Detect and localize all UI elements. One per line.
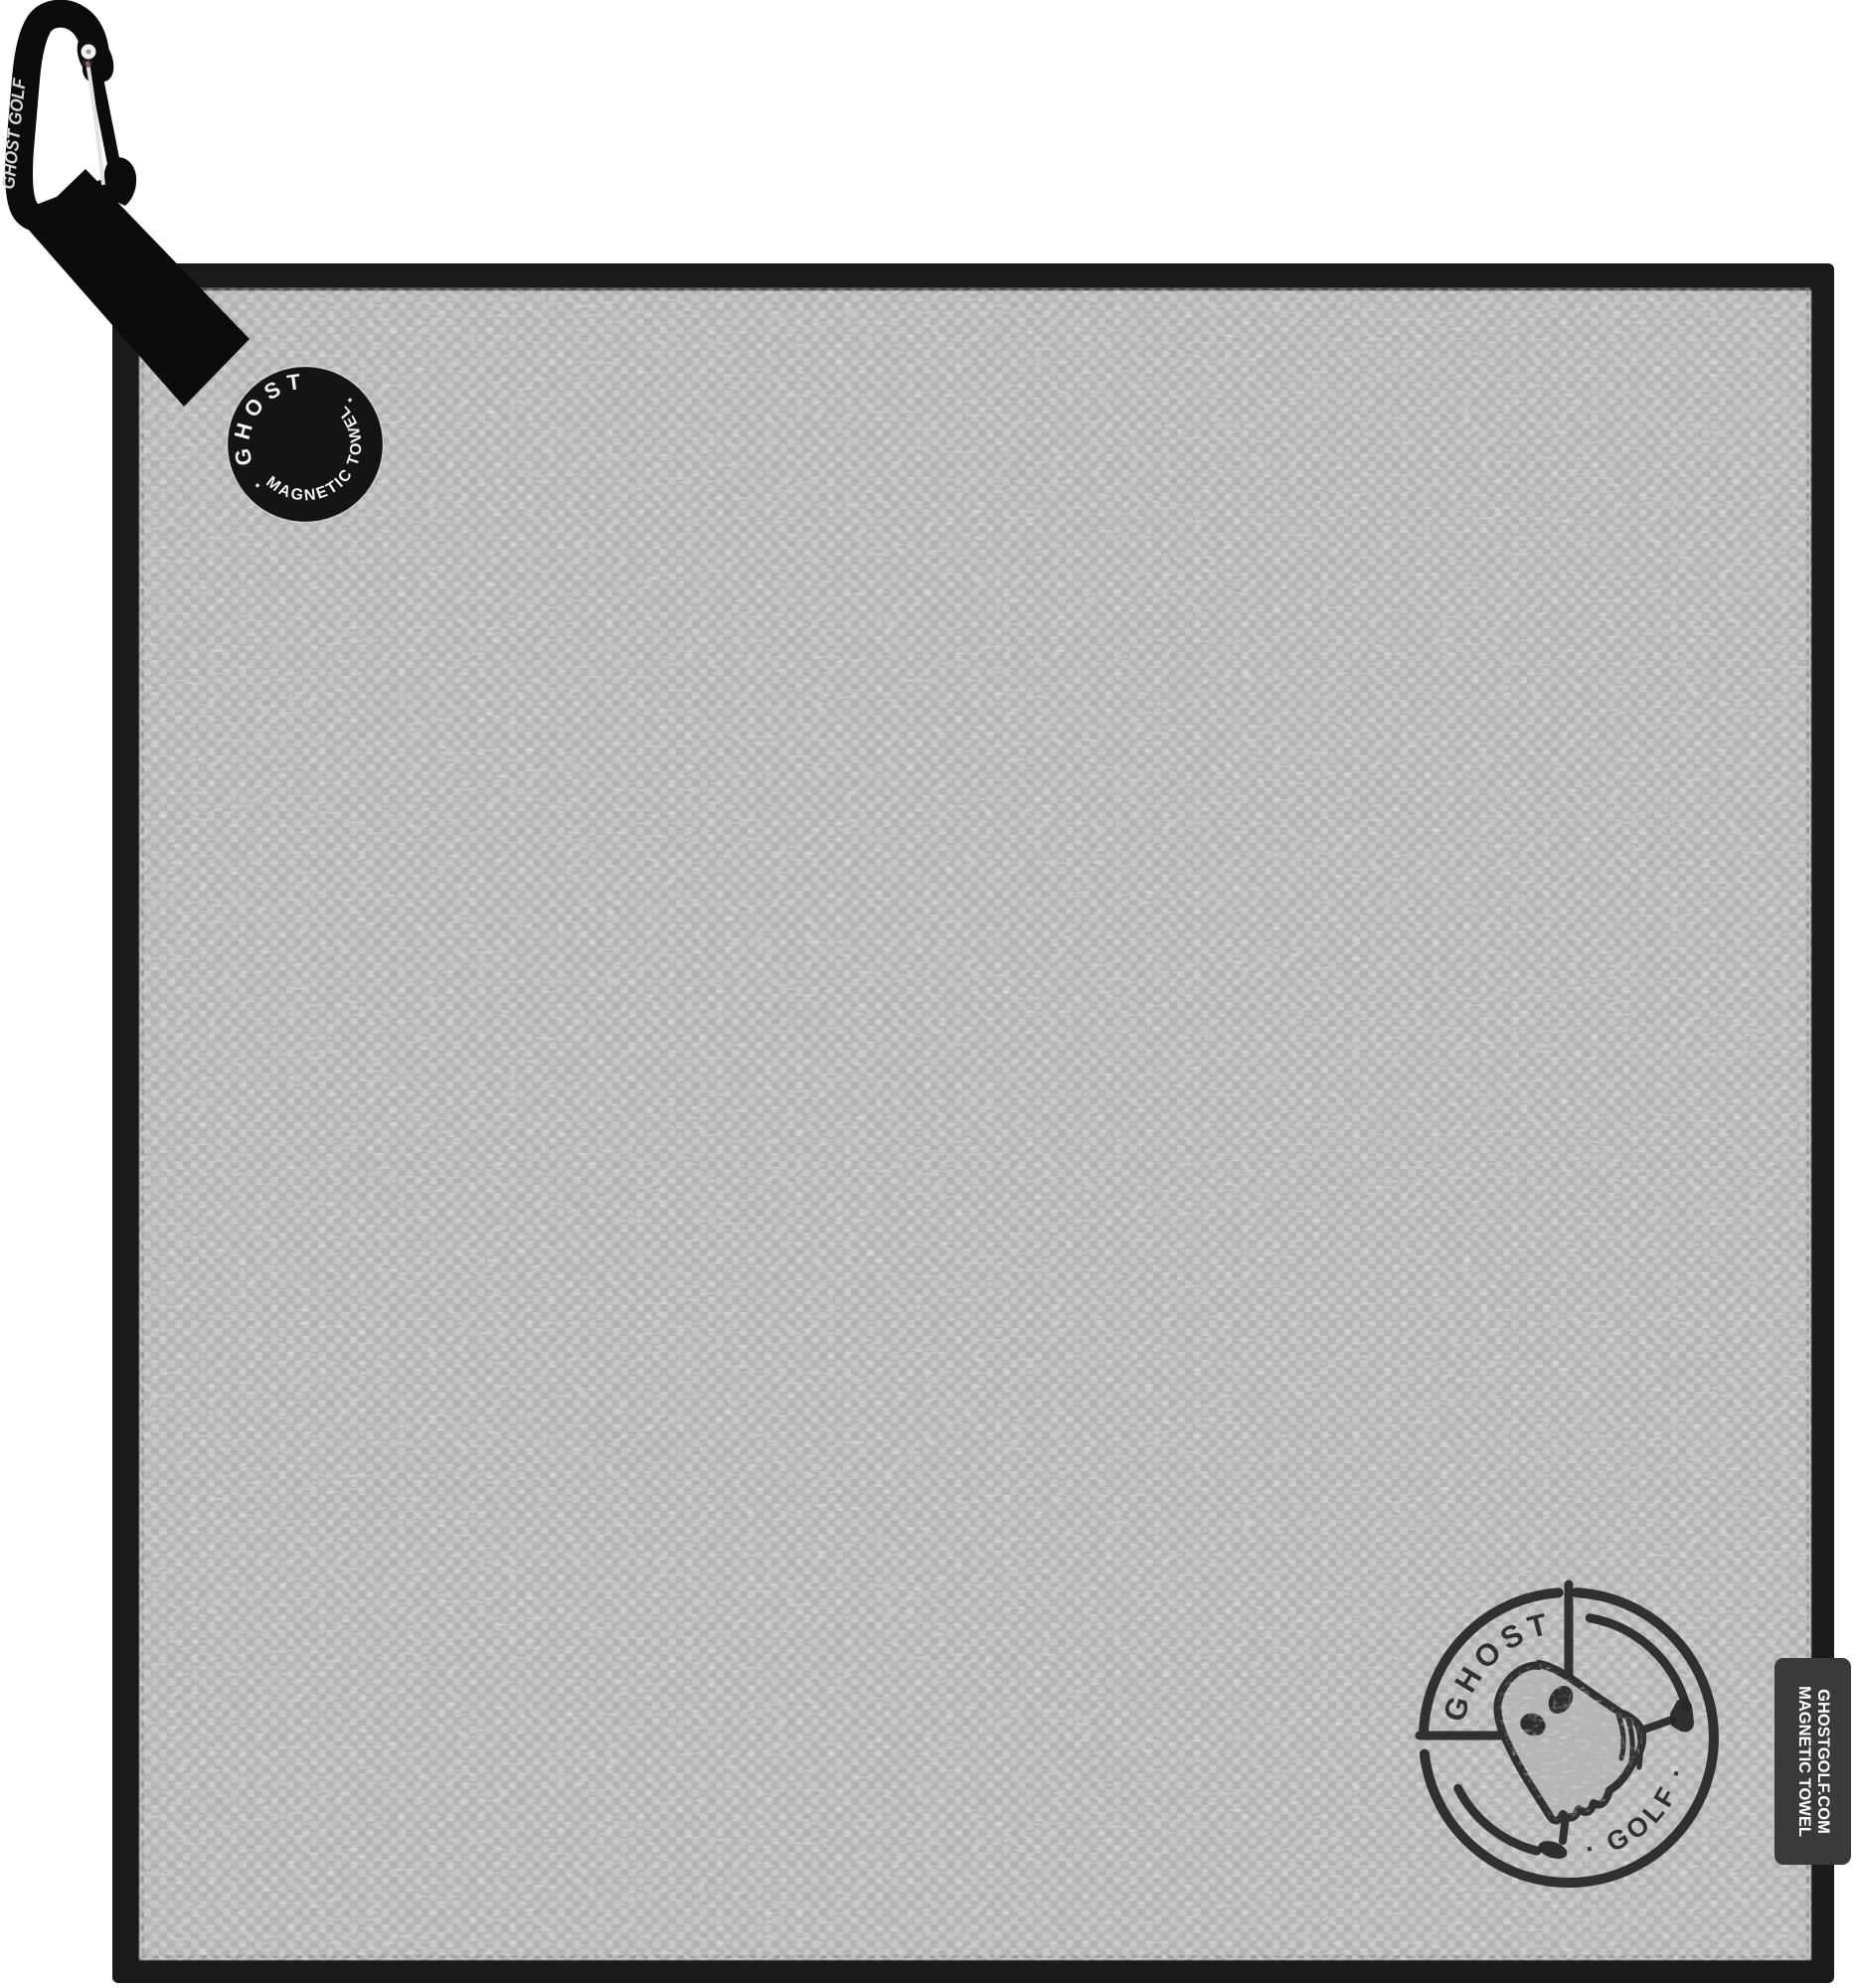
svg-text:GHOSTGOLF.COM: GHOSTGOLF.COM <box>1814 1689 1832 1834</box>
svg-text:MAGNETIC TOWEL: MAGNETIC TOWEL <box>1795 1686 1813 1837</box>
